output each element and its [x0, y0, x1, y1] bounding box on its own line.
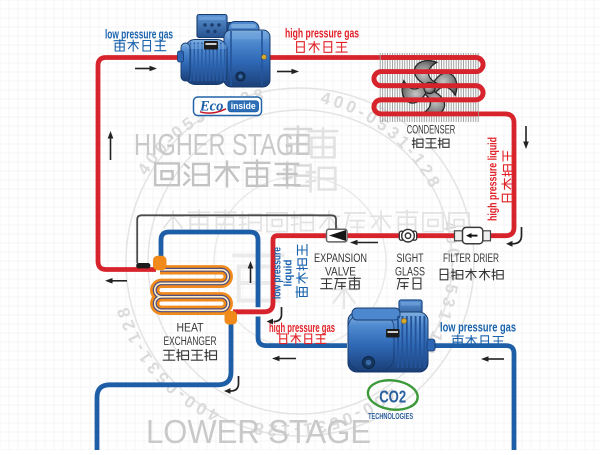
- svg-text:low pressure gas: low pressure gas: [440, 320, 516, 335]
- svg-text:high pressure gas: high pressure gas: [269, 321, 335, 335]
- svg-text:TECHNOLOGIES: TECHNOLOGIES: [368, 412, 413, 421]
- svg-text:VALVE: VALVE: [325, 267, 356, 279]
- svg-text:LOWER STAGE: LOWER STAGE: [146, 413, 371, 450]
- svg-text:EXCHANGER: EXCHANGER: [164, 336, 217, 348]
- svg-text:low pressure gas: low pressure gas: [105, 26, 173, 41]
- svg-text:HIGHER STAGE: HIGHER STAGE: [134, 127, 310, 162]
- svg-text:GLASS: GLASS: [395, 267, 425, 279]
- svg-text:SIGHT: SIGHT: [397, 253, 424, 265]
- svg-text:inside: inside: [231, 101, 256, 111]
- svg-text:liquid: liquid: [283, 260, 295, 287]
- svg-text:EXPANSION: EXPANSION: [314, 253, 367, 265]
- svg-text:high pressure liquid: high pressure liquid: [488, 137, 500, 221]
- svg-text:high pressure gas: high pressure gas: [285, 26, 359, 41]
- svg-text:CO2: CO2: [379, 386, 406, 406]
- svg-text:CONDENSER: CONDENSER: [407, 125, 456, 137]
- svg-text:HEAT: HEAT: [177, 323, 204, 335]
- svg-text:FILTER DRIER: FILTER DRIER: [443, 253, 499, 265]
